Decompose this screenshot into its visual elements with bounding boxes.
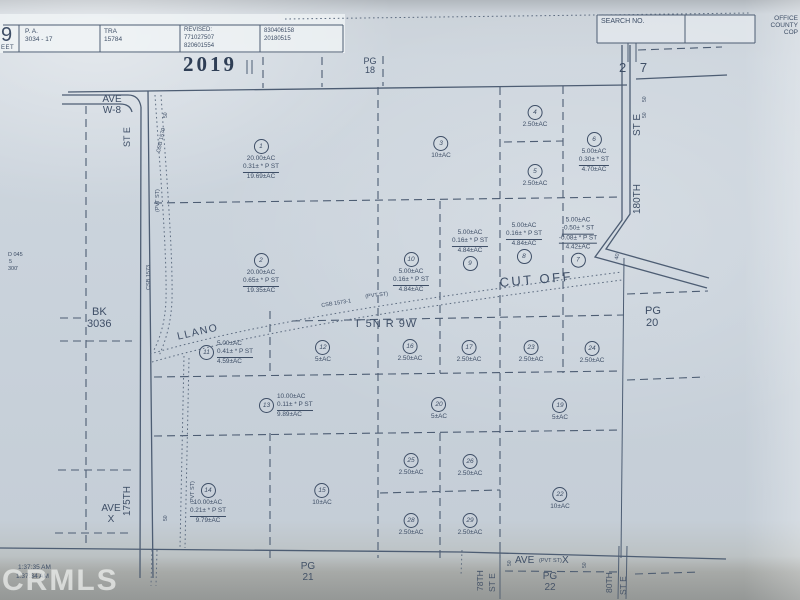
- crmls-watermark: CRMLS: [2, 564, 119, 599]
- search-no-label: SEARCH NO.: [601, 18, 645, 26]
- parcel-acreage: 5.00±AC0.16± * P ST4.84±AC: [393, 268, 429, 294]
- parcel-acreage-line: 19.69±AC: [247, 173, 275, 181]
- dim-50-ave-w8: 50: [164, 112, 170, 118]
- parcel-number: 15: [315, 483, 330, 498]
- pvt-st-upper-label: (PVT ST): [155, 189, 161, 212]
- parcel-number: 11: [199, 345, 214, 360]
- parcel-25: 252.50±AC: [399, 453, 424, 477]
- parcel-acreage-line: 10±AC: [312, 499, 332, 507]
- parcel-acreage-line: 5.00±AC: [582, 148, 607, 156]
- parcel-number: 20: [431, 397, 446, 412]
- parcel-number: 4: [527, 105, 542, 120]
- street-80th-st-e-label: ST E: [619, 576, 629, 595]
- parcel-22: 2210±AC: [550, 487, 570, 511]
- street-80th-label: 80TH: [605, 572, 615, 593]
- parcel-19: 195±AC: [552, 398, 568, 422]
- dim-50-bottom-2: 50: [583, 562, 589, 568]
- parcel-number: 10: [403, 252, 418, 267]
- street-180th-label: 180TH: [632, 184, 644, 214]
- parcel-acreage: 5.00±AC0.30± * ST4.70±AC: [579, 148, 609, 174]
- parcel-acreage-line: 2.50±AC: [519, 356, 544, 364]
- parcel-acreage: 5±AC: [552, 414, 568, 422]
- parcel-9: 5.00±AC0.16± * P ST4.84±AC9: [452, 229, 488, 271]
- ave-x-bottom-label-pvt: (PVT ST): [539, 558, 562, 564]
- parcel-number: 14: [200, 483, 215, 498]
- parcel-acreage-line: 5.00±AC: [217, 340, 242, 348]
- parcel-acreage-line: 2.50±AC: [580, 357, 605, 365]
- parcel-13: 1310.00±AC0.11± * P ST9.89±AC: [259, 393, 313, 419]
- parcel-acreage: 2.50±AC: [399, 469, 424, 477]
- parcel-acreage-line: 2.50±AC: [523, 121, 548, 129]
- street-78th-st-e-label: ST E: [488, 573, 498, 592]
- margin-note-line-3: 300': [8, 266, 18, 272]
- ave-x-label-line-1: AVE: [96, 503, 126, 515]
- page-ref-bottom-num: 21: [295, 572, 321, 584]
- parcel-17: 172.50±AC: [457, 340, 482, 364]
- parcel-number: 6: [587, 132, 602, 147]
- margin-note-line-1: D 045: [8, 252, 23, 258]
- parcel-12: 125±AC: [315, 340, 331, 364]
- parcel-acreage-line: 10.00±AC: [277, 393, 305, 401]
- parcel-29: 292.50±AC: [458, 513, 483, 537]
- parcel-acreage-line: 0.16± * P ST: [506, 230, 542, 239]
- page-ref-top-num: 18: [357, 65, 383, 75]
- parcel-number: 19: [552, 398, 567, 413]
- parcel-acreage: 2.50±AC: [523, 180, 548, 188]
- parcel-acreage: 10.00±AC0.21± * P ST9.79±AC: [190, 499, 226, 525]
- parcel-acreage-line: 5.00±AC: [512, 222, 537, 230]
- parcel-number: 7: [570, 253, 585, 268]
- page-ref-bottom-pg: PG: [295, 561, 321, 573]
- pa-label: P. A.: [25, 28, 38, 35]
- parcel-acreage-line: 10±AC: [550, 503, 570, 511]
- dim-50-ave-x: 50: [164, 515, 170, 521]
- margin-note-line-2: 5: [9, 259, 12, 265]
- street-78th-label: 78TH: [476, 570, 486, 591]
- parcel-number: 1: [253, 139, 268, 154]
- revised-label: REVISED:: [184, 27, 212, 34]
- office-copy-line-3: COP: [752, 29, 798, 36]
- parcel-acreage-line: 10±AC: [431, 152, 451, 160]
- parcel-23: 232.50±AC: [519, 340, 544, 364]
- parcel-acreage-line: 2.50±AC: [523, 180, 548, 188]
- parcel-acreage-line: 0.16± * P ST: [452, 237, 488, 246]
- parcel-acreage-line: 4.84±AC: [512, 240, 537, 248]
- map-year: 2019: [183, 52, 237, 76]
- parcel-acreage-line: 10.00±AC: [194, 499, 222, 507]
- ave-w8-label-line-2: W-8: [98, 105, 126, 117]
- parcel-acreage-line: 0.21± * P ST: [190, 507, 226, 516]
- revised-value-1: 771027507: [184, 35, 214, 42]
- ave-x-label-line-2: X: [96, 514, 126, 526]
- parcel-acreage-line: 0.65± * P ST: [243, 277, 279, 286]
- parcel-acreage-line: 9.79±AC: [196, 517, 221, 525]
- parcel-acreage-line: 2.50±AC: [399, 529, 424, 537]
- parcel-number: 8: [516, 249, 531, 264]
- parcel-acreage: 5.00±AC0.16± * P ST4.84±AC: [506, 222, 542, 248]
- parcel-acreage: 2.50±AC: [523, 121, 548, 129]
- parcel-acreage-line: 0.16± * P ST: [393, 276, 429, 285]
- parcel-acreage-line: 2.50±AC: [458, 529, 483, 537]
- parcel-number: 12: [315, 340, 330, 355]
- parcel-11: 115.00±AC0.41± * P ST4.59±AC: [199, 340, 253, 366]
- parcel-acreage: 2.50±AC: [398, 355, 423, 363]
- parcel-acreage-line: 5.00±AC: [458, 229, 483, 237]
- ave-x-bottom-label-x: X: [562, 555, 569, 567]
- parcel-acreage: 2.50±AC: [457, 356, 482, 364]
- parcel-acreage-line: 20.00±AC: [247, 155, 275, 163]
- parcel-number: 24: [584, 341, 599, 356]
- parcel-acreage: 2.50±AC: [399, 529, 424, 537]
- parcel-number: 9: [462, 256, 477, 271]
- page-ref-right-pg: PG: [645, 305, 661, 318]
- street-st-e-left-label: ST E: [122, 127, 132, 147]
- parcel-acreage-line: 2.50±AC: [458, 470, 483, 478]
- parcel-26: 262.50±AC: [458, 454, 483, 478]
- parcel-20: 205±AC: [431, 397, 447, 421]
- dim-50-bottom-1: 50: [508, 560, 514, 566]
- parcel-acreage-line: 5.00±AC: [566, 217, 591, 225]
- page-ref-bottom-right-num: 22: [537, 582, 563, 594]
- dim-40-cutoff: 40: [614, 253, 621, 260]
- book-label: BK: [92, 306, 107, 319]
- parcel-acreage: 2.50±AC: [458, 529, 483, 537]
- parcel-acreage: 5.00±AC0.41± * P ST4.59±AC: [217, 340, 253, 366]
- parcel-acreage-line: 4.84±AC: [399, 286, 424, 294]
- parcel-number: 17: [461, 340, 476, 355]
- parcel-acreage-line: 20.00±AC: [247, 269, 275, 277]
- parcel-acreage-line: 5±AC: [315, 356, 331, 364]
- parcel-acreage-line: 4.42±AC: [566, 244, 591, 252]
- tra-label: TRA: [104, 28, 117, 35]
- page-ref-bottom-right-pg: PG: [537, 571, 563, 583]
- parcel-10: 105.00±AC0.16± * P ST4.84±AC: [393, 252, 429, 294]
- sheet-number-caption: EET: [1, 45, 14, 52]
- township-range-label: T 5N R 9W: [354, 318, 417, 331]
- parcel-acreage: 20.00±AC0.31± * P ST19.69±AC: [243, 155, 279, 181]
- parcel-number: 25: [403, 453, 418, 468]
- parcel-number: 2: [253, 253, 268, 268]
- parcel-acreage-line: 2.50±AC: [457, 356, 482, 364]
- book-number: 3036: [87, 318, 111, 331]
- parcel-3: 310±AC: [431, 136, 451, 160]
- section-numbers: 2 7: [619, 61, 652, 76]
- revised-value-2: 820601554: [184, 43, 214, 50]
- parcel-number: 28: [403, 513, 418, 528]
- parcel-acreage-line: -0.08± * P ST: [559, 234, 597, 243]
- ave-x-bottom-label-ave: AVE: [515, 555, 534, 567]
- parcel-acreage: 20.00±AC0.65± * P ST19.35±AC: [243, 269, 279, 295]
- csb-1573-label: CSB 1573: [146, 265, 152, 290]
- parcel-8: 5.00±AC0.16± * P ST4.84±AC8: [506, 222, 542, 264]
- tra-value: 15784: [104, 36, 122, 43]
- parcel-24: 242.50±AC: [580, 341, 605, 365]
- pa-value: 3034 - 17: [25, 36, 52, 43]
- parcel-acreage-line: 5.00±AC: [399, 268, 424, 276]
- parcel-acreage: 2.50±AC: [519, 356, 544, 364]
- parcel-number: 5: [527, 164, 542, 179]
- parcel-acreage-line: 4.84±AC: [458, 247, 483, 255]
- parcel-acreage-line: 19.35±AC: [247, 287, 275, 295]
- parcel-acreage-line: 0.31± * P ST: [243, 163, 279, 172]
- dim-50-right-1: 50: [643, 96, 649, 102]
- parcel-number: 16: [402, 339, 417, 354]
- parcel-acreage-line: -0.50± * ST: [562, 225, 594, 234]
- parcel-acreage-line: 0.11± * P ST: [277, 401, 313, 410]
- parcel-acreage: 10±AC: [312, 499, 332, 507]
- parcel-acreage-line: 0.41± * P ST: [217, 348, 253, 357]
- parcel-acreage: 10±AC: [550, 503, 570, 511]
- parcel-1: 120.00±AC0.31± * P ST19.69±AC: [243, 139, 279, 181]
- assessor-plat-map-page: 9 EET P. A. 3034 - 17 TRA 15784 REVISED:…: [0, 0, 800, 600]
- stamp-number-1: 830406158: [264, 28, 294, 35]
- parcel-number: 26: [462, 454, 477, 469]
- parcel-number: 23: [523, 340, 538, 355]
- parcel-7: 5.00±AC-0.50± * ST-0.08± * P ST4.42±AC7: [559, 217, 597, 268]
- parcel-number: 29: [462, 513, 477, 528]
- parcel-4: 42.50±AC: [523, 105, 548, 129]
- parcel-acreage: 5±AC: [431, 413, 447, 421]
- sheet-number: 9: [1, 24, 12, 47]
- parcel-28: 282.50±AC: [399, 513, 424, 537]
- parcel-acreage-line: 5±AC: [552, 414, 568, 422]
- dim-50-right-2: 50: [643, 112, 649, 118]
- parcel-acreage: 2.50±AC: [580, 357, 605, 365]
- parcel-acreage: 5.00±AC0.16± * P ST4.84±AC: [452, 229, 488, 255]
- parcel-acreage-line: 0.30± * ST: [579, 156, 609, 165]
- parcel-acreage: 5±AC: [315, 356, 331, 364]
- parcel-acreage-line: 2.50±AC: [399, 469, 424, 477]
- ave-w8-label-line-1: AVE: [98, 94, 126, 106]
- parcel-acreage-line: 2.50±AC: [398, 355, 423, 363]
- parcel-5: 52.50±AC: [523, 164, 548, 188]
- stamp-number-2: 20180515: [264, 36, 291, 43]
- parcel-acreage-line: 9.89±AC: [277, 411, 302, 419]
- parcel-6: 65.00±AC0.30± * ST4.70±AC: [579, 132, 609, 174]
- parcel-acreage-line: 4.59±AC: [217, 358, 242, 366]
- parcel-14: 1410.00±AC0.21± * P ST9.79±AC: [190, 483, 226, 525]
- parcel-number: 13: [259, 398, 274, 413]
- parcel-number: 3: [434, 136, 449, 151]
- parcel-2: 220.00±AC0.65± * P ST19.35±AC: [243, 253, 279, 295]
- parcel-acreage-line: 5±AC: [431, 413, 447, 421]
- parcel-number: 22: [553, 487, 568, 502]
- parcel-acreage-line: 4.70±AC: [582, 166, 607, 174]
- parcel-acreage: 2.50±AC: [458, 470, 483, 478]
- parcel-acreage: 10±AC: [431, 152, 451, 160]
- parcel-acreage: 10.00±AC0.11± * P ST9.89±AC: [277, 393, 313, 419]
- parcel-15: 1510±AC: [312, 483, 332, 507]
- parcel-acreage: 5.00±AC-0.50± * ST-0.08± * P ST4.42±AC: [559, 217, 597, 252]
- parcel-16: 162.50±AC: [398, 339, 423, 363]
- page-ref-right-num: 20: [646, 317, 658, 330]
